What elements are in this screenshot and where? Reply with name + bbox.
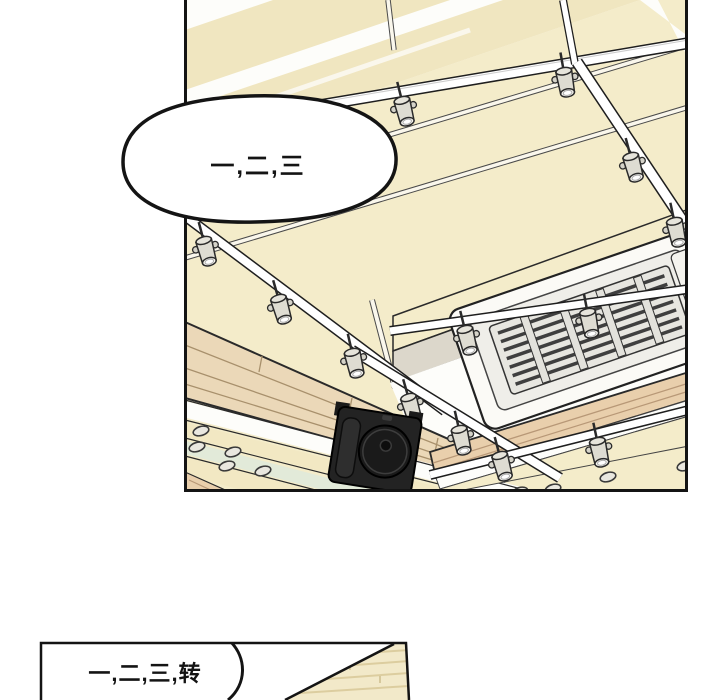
speech-bubble-text: 一,二,三: [210, 153, 305, 180]
speaker-dust-cap: [380, 439, 393, 452]
speech-bubble-bottom-text: 一,二,三,转: [88, 661, 201, 686]
comic-panel-top: 一,二,三: [123, 0, 720, 518]
speech-bubble-top: 一,二,三: [123, 96, 396, 222]
comic-artwork: 一,二,三 一,二,三,转: [0, 0, 720, 700]
comic-panel-bottom: 一,二,三,转: [41, 641, 409, 700]
ceiling-illustration: [180, 0, 720, 518]
comic-page: 一,二,三 一,二,三,转: [0, 0, 720, 700]
